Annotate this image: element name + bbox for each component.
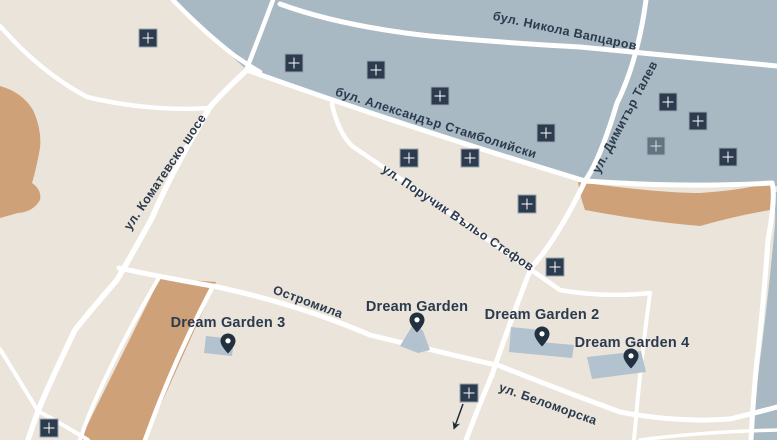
plus-marker-icon[interactable] [546,258,565,277]
plus-marker-icon[interactable] [40,419,59,438]
plus-marker-icon[interactable] [139,29,158,48]
plus-marker-icon[interactable] [719,148,738,167]
direction-arrow [455,404,463,426]
plus-marker-icon[interactable] [400,149,419,168]
plus-marker-icon[interactable] [461,149,480,168]
plus-marker-icon[interactable] [460,384,479,403]
plus-marker-icon[interactable] [647,137,666,156]
road-northwest-curve [0,26,210,109]
plus-marker-icon[interactable] [689,112,708,131]
plus-marker-icon[interactable] [537,124,556,143]
location-pin-icon[interactable] [534,326,550,347]
plus-marker-icon[interactable] [659,93,678,112]
plus-marker-icon[interactable] [431,87,450,106]
buildings-layer [204,323,646,379]
plus-marker-icon[interactable] [518,195,537,214]
place-label-dream-garden-3: Dream Garden 3 [171,315,286,331]
plus-marker-icon[interactable] [285,54,304,73]
location-pin-icon[interactable] [623,348,639,369]
location-pin-icon[interactable] [409,312,425,333]
place-label-dream-garden-2: Dream Garden 2 [485,307,600,323]
map-base-layer [0,0,777,440]
map-canvas[interactable]: бул. Никола Вапцаров бул. Александър Ста… [0,0,777,440]
plus-marker-icon[interactable] [367,61,386,80]
location-pin-icon[interactable] [220,333,236,354]
